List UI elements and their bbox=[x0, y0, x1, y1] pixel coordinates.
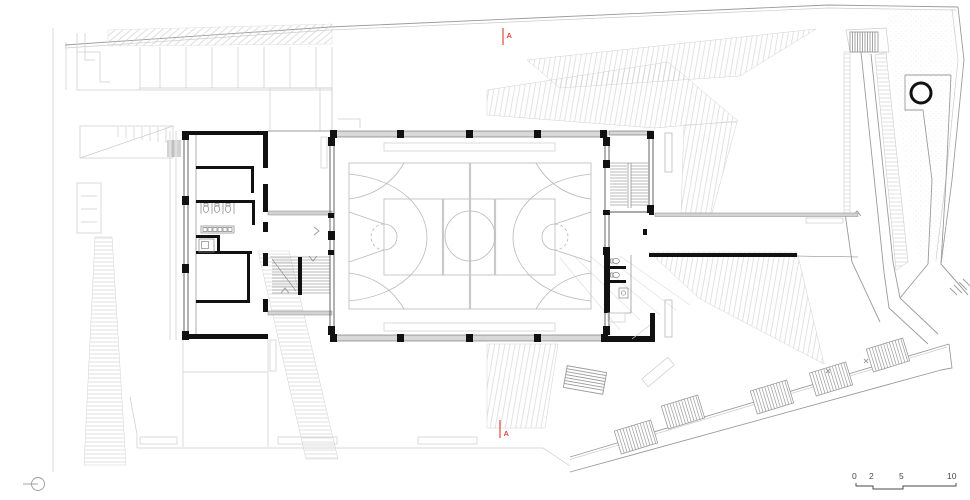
floor-plan-page: A A 0 2 5 10 bbox=[0, 0, 970, 500]
changing-rooms-block bbox=[170, 131, 332, 340]
parking-area bbox=[77, 24, 332, 131]
toilet-block-east bbox=[604, 255, 650, 339]
east-walkway bbox=[643, 211, 858, 257]
south-wall bbox=[184, 334, 268, 339]
scale-label-2: 2 bbox=[869, 471, 874, 481]
stair-flight bbox=[614, 420, 657, 454]
stair-flight bbox=[661, 395, 704, 429]
stair-flight bbox=[866, 338, 909, 372]
parking-stall-lines bbox=[160, 47, 316, 88]
scale-label-0: 0 bbox=[852, 471, 857, 481]
retaining-wall-hatch bbox=[844, 52, 850, 213]
centre-and-attack-lines bbox=[443, 163, 495, 309]
top-stair-flight bbox=[850, 32, 878, 52]
tilted-planter bbox=[642, 357, 674, 387]
locker-row bbox=[201, 226, 234, 233]
slope-hatch-top bbox=[108, 24, 332, 46]
mid-stair bbox=[563, 366, 606, 395]
shower-room bbox=[199, 239, 214, 252]
bench bbox=[140, 437, 177, 444]
stair-flight bbox=[750, 380, 793, 414]
stair-flight bbox=[809, 362, 852, 396]
slope-hatch-3 bbox=[681, 122, 737, 213]
door-swing-marks bbox=[309, 227, 319, 261]
scale-label-10: 10 bbox=[947, 471, 957, 481]
upper-terrace-outline bbox=[270, 88, 332, 131]
skylight-south bbox=[384, 323, 555, 331]
planter-south bbox=[665, 300, 672, 337]
wc-stalls bbox=[201, 203, 234, 214]
switchback-ramp bbox=[77, 183, 101, 233]
section-label-top: A bbox=[507, 31, 513, 40]
site-terrain bbox=[53, 5, 970, 472]
section-marker-top: A bbox=[503, 28, 513, 45]
slope-hatch-7 bbox=[487, 344, 558, 428]
east-upper-path bbox=[844, 8, 968, 344]
walkway-bench bbox=[806, 218, 843, 223]
basketball-court bbox=[349, 163, 591, 309]
scale-bar: 0 2 5 10 bbox=[852, 471, 957, 489]
northeast-staircase bbox=[609, 131, 654, 213]
slope-hatch-6 bbox=[649, 252, 824, 364]
entry-ramp-west bbox=[80, 126, 180, 158]
skylight-north bbox=[384, 143, 555, 151]
west-property-line bbox=[53, 28, 66, 472]
section-label-bottom: A bbox=[504, 429, 510, 438]
north-wall bbox=[188, 131, 266, 135]
scale-label-5: 5 bbox=[899, 471, 904, 481]
bench bbox=[418, 437, 477, 444]
sink bbox=[619, 288, 628, 298]
planter-north bbox=[665, 133, 672, 172]
north-symbol-icon bbox=[23, 478, 45, 491]
external-stair-path bbox=[563, 338, 952, 472]
slope-hatch-4 bbox=[84, 237, 126, 465]
floor-plan-canvas: A A 0 2 5 10 bbox=[0, 0, 970, 500]
sports-hall bbox=[328, 130, 655, 342]
